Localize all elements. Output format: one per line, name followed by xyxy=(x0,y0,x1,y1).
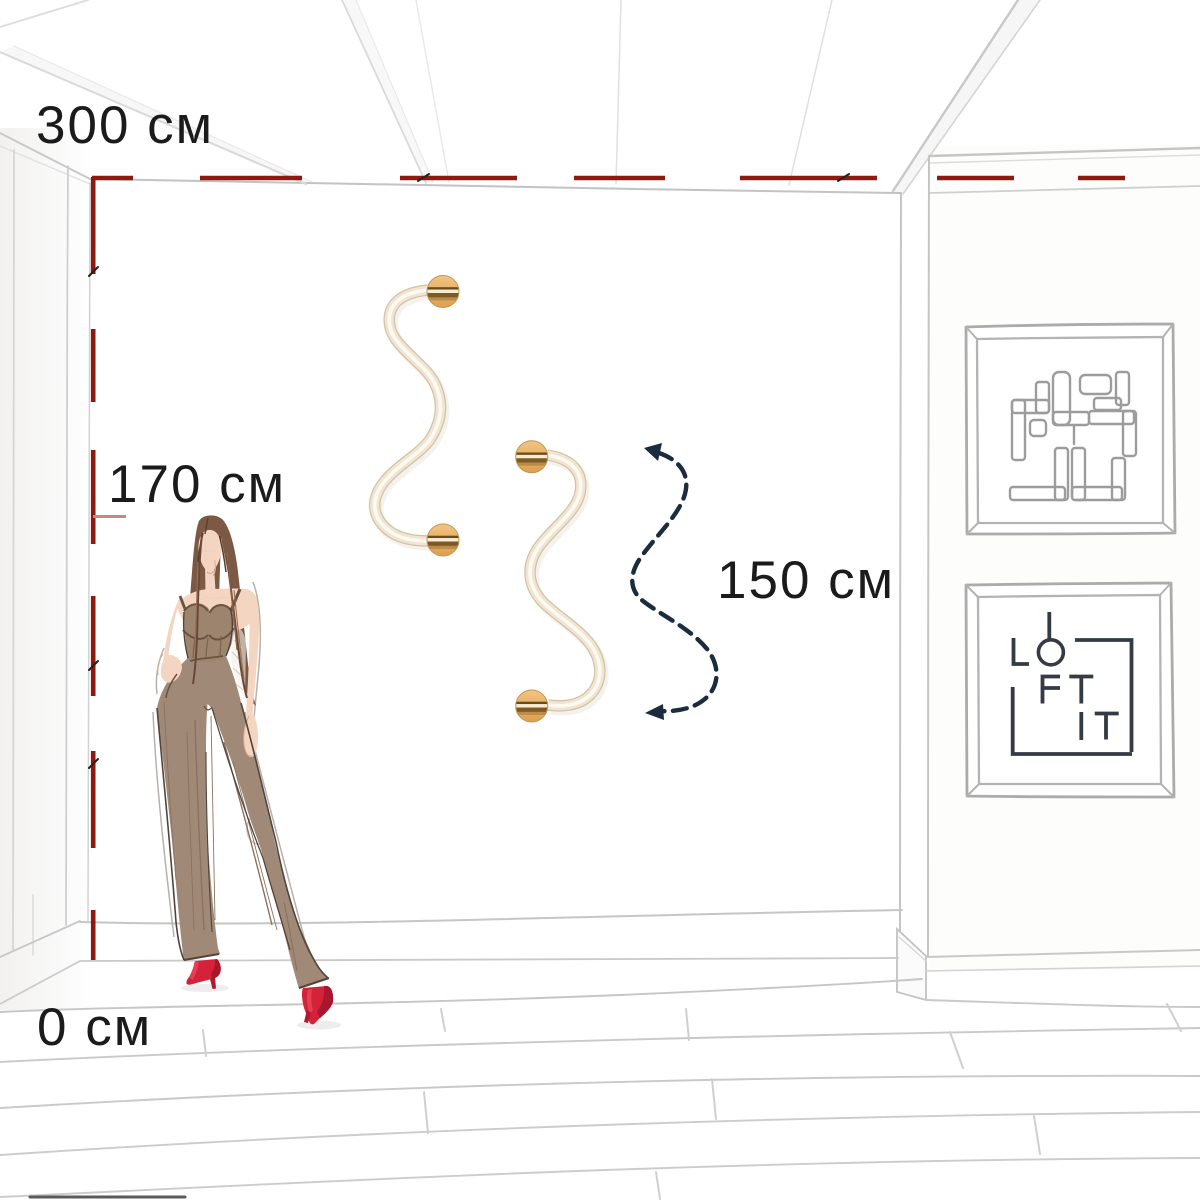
svg-text:170 см: 170 см xyxy=(108,455,286,514)
svg-text:0 см: 0 см xyxy=(37,998,152,1057)
svg-text:300 см: 300 см xyxy=(36,96,214,155)
svg-text:150 см: 150 см xyxy=(717,551,895,610)
